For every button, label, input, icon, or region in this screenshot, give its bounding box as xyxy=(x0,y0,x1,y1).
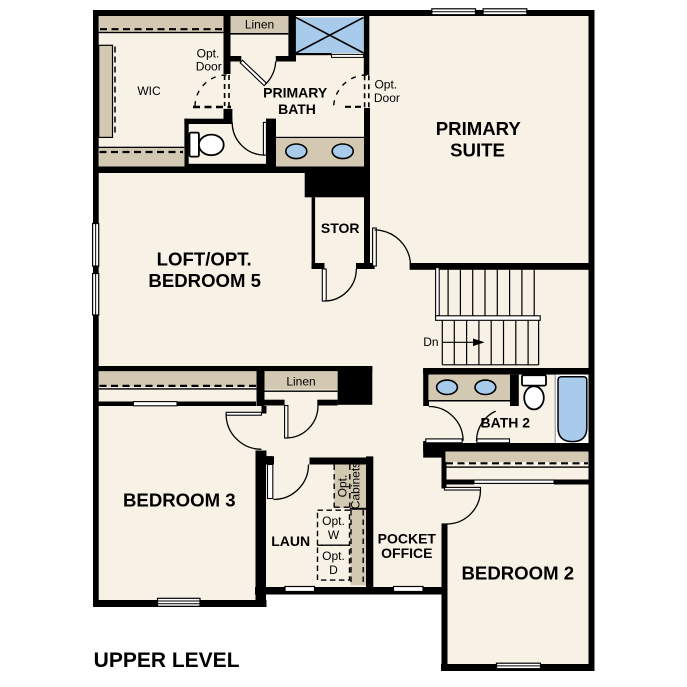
svg-text:Opt.: Opt. xyxy=(336,475,350,498)
svg-text:POCKET: POCKET xyxy=(378,531,437,547)
svg-text:Cabinets: Cabinets xyxy=(349,462,363,509)
svg-text:Opt.: Opt. xyxy=(322,549,345,563)
svg-text:Door: Door xyxy=(374,91,400,105)
svg-text:BATH 2: BATH 2 xyxy=(481,415,531,431)
svg-text:WIC: WIC xyxy=(137,84,161,98)
svg-text:PRIMARY: PRIMARY xyxy=(263,85,328,101)
svg-text:SUITE: SUITE xyxy=(450,140,505,161)
svg-text:BATH: BATH xyxy=(278,101,316,117)
svg-text:STOR: STOR xyxy=(321,220,360,236)
svg-text:BEDROOM 5: BEDROOM 5 xyxy=(148,270,261,291)
svg-text:BEDROOM 2: BEDROOM 2 xyxy=(461,563,574,584)
svg-text:LOFT/OPT.: LOFT/OPT. xyxy=(157,249,252,270)
svg-text:BEDROOM 3: BEDROOM 3 xyxy=(123,490,236,511)
svg-text:Door: Door xyxy=(196,60,222,74)
svg-text:Opt.: Opt. xyxy=(322,514,345,528)
svg-text:Dn: Dn xyxy=(423,335,438,349)
svg-text:Opt.: Opt. xyxy=(374,77,397,91)
svg-text:Opt.: Opt. xyxy=(197,47,220,61)
svg-text:W: W xyxy=(328,528,340,542)
svg-text:OFFICE: OFFICE xyxy=(381,545,432,561)
svg-text:PRIMARY: PRIMARY xyxy=(436,118,522,139)
svg-text:D: D xyxy=(329,563,338,577)
svg-text:UPPER LEVEL: UPPER LEVEL xyxy=(94,649,240,672)
svg-text:Linen: Linen xyxy=(245,18,274,32)
svg-text:Linen: Linen xyxy=(286,374,315,388)
svg-text:LAUN: LAUN xyxy=(271,533,310,549)
